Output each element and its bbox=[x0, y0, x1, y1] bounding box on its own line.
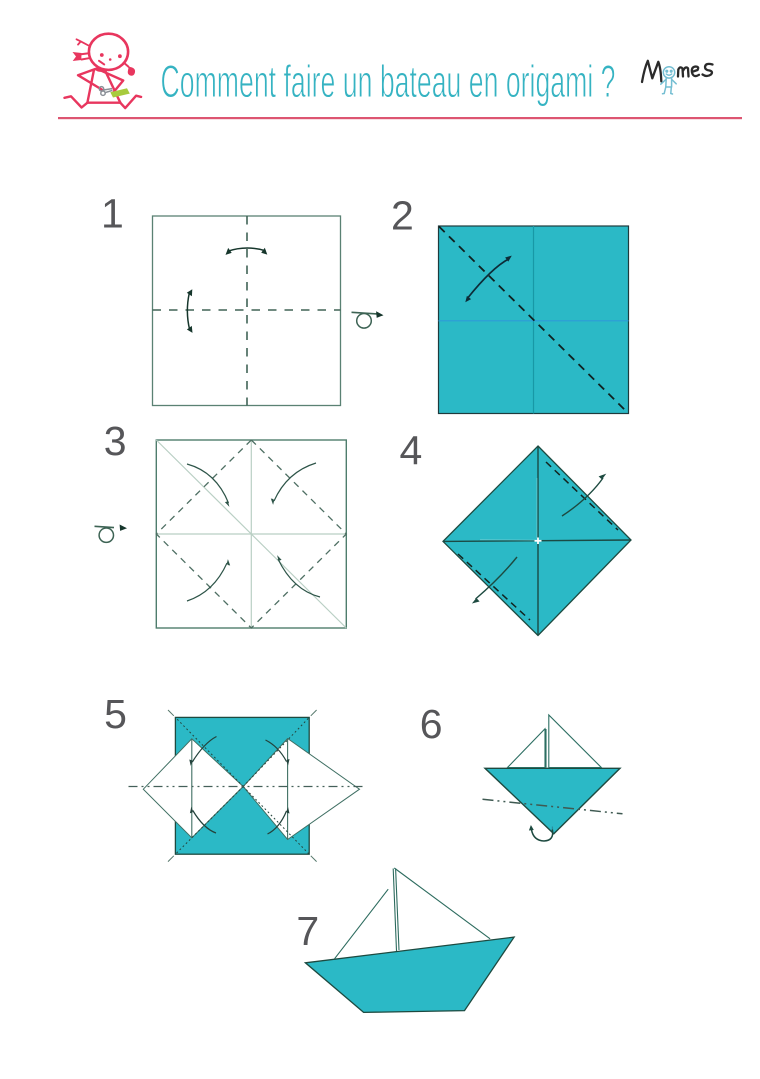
svg-text:4: 4 bbox=[400, 428, 423, 474]
svg-text:5: 5 bbox=[104, 691, 127, 737]
svg-text:Comment faire un bateau en ori: Comment faire un bateau en origami ? bbox=[161, 56, 616, 107]
svg-text:7: 7 bbox=[296, 908, 319, 954]
svg-text:6: 6 bbox=[420, 701, 443, 747]
svg-text:3: 3 bbox=[104, 418, 127, 464]
svg-text:1: 1 bbox=[101, 191, 124, 237]
svg-text:2: 2 bbox=[391, 193, 414, 239]
